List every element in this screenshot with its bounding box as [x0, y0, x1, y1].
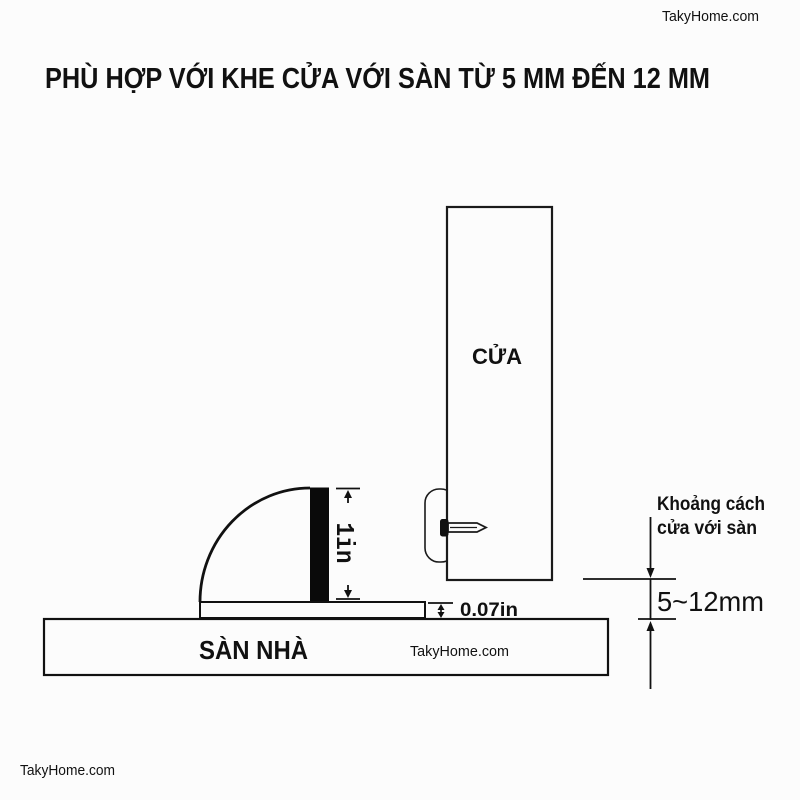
- svg-text:SÀN NHÀ: SÀN NHÀ: [199, 635, 308, 665]
- svg-text:5~12mm: 5~12mm: [657, 586, 764, 617]
- svg-text:TakyHome.com: TakyHome.com: [20, 762, 115, 779]
- svg-text:CỬA: CỬA: [472, 344, 522, 369]
- svg-text:cửa với sàn: cửa với sàn: [657, 518, 757, 539]
- svg-text:Khoảng cách: Khoảng cách: [657, 494, 765, 515]
- svg-text:0.07in: 0.07in: [460, 600, 518, 621]
- svg-text:TakyHome.com: TakyHome.com: [410, 643, 509, 660]
- svg-text:TakyHome.com: TakyHome.com: [662, 8, 759, 25]
- svg-text:PHÙ HỢP VỚI KHE CỬA VỚI SÀN TỪ: PHÙ HỢP VỚI KHE CỬA VỚI SÀN TỪ 5 MM ĐẾN …: [45, 61, 710, 95]
- svg-text:1in: 1in: [329, 523, 359, 564]
